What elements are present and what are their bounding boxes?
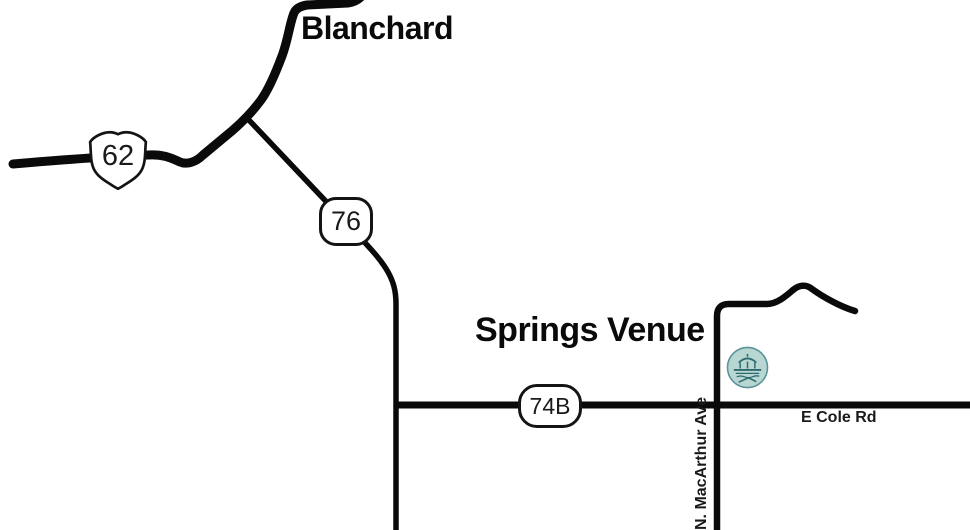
shield-74b-label: 74B [530,393,571,420]
venue-gazebo-icon [726,346,769,389]
street-label-macarthur-ave: N. MacArthur Ave [693,382,713,530]
highway-shield-76: 76 [319,197,373,246]
highway-shield-74b: 74B [518,384,582,428]
directions-map: 62 76 74B Blanchard Springs Venue E Cole… [0,0,970,530]
road-network [0,0,970,530]
highway-shield-us62: 62 [86,128,150,190]
venue-name-label: Springs Venue [475,311,705,350]
town-label-blanchard: Blanchard [301,10,453,47]
street-label-e-cole-rd: E Cole Rd [801,409,877,427]
shield-76-label: 76 [331,206,361,237]
shield-62-label: 62 [86,140,150,173]
road-sh76 [247,118,396,530]
